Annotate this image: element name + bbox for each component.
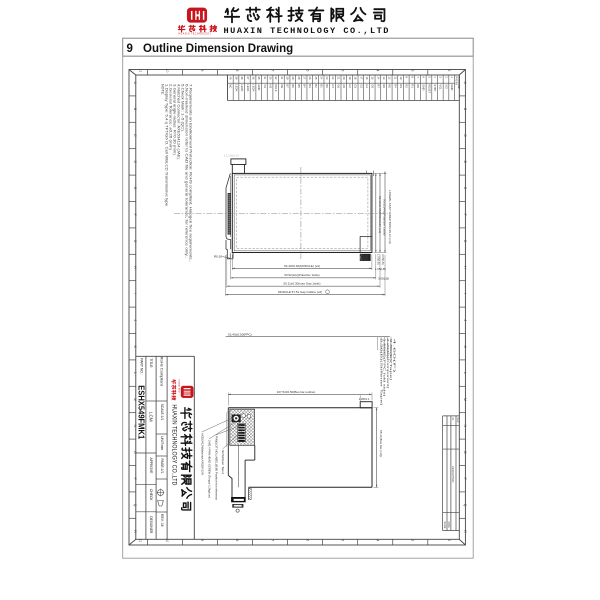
svg-text:J: J <box>463 319 467 321</box>
svg-text:VS: VS <box>263 84 267 88</box>
svg-text:2.General Tolerance: ±0.20 (mm: 2.General Tolerance: ±0.20 (mm) <box>169 84 173 151</box>
svg-text:11: 11 <box>138 539 142 543</box>
svg-text:I: I <box>133 293 137 294</box>
svg-text:4.Matched Connector: AXE534124: 4.Matched Connector: AXE534124 (JAE). <box>177 84 181 160</box>
svg-text:1.Display Type: 5.4 q TFT/G6 O: 1.Display Type: 5.4 q TFT/G6 O. Cell WBL… <box>165 84 169 206</box>
svg-text:NAME: NAME <box>443 522 446 529</box>
svg-text:12: 12 <box>388 76 392 79</box>
svg-text:37: 37 <box>246 76 250 79</box>
svg-text:B1: B1 <box>320 84 324 88</box>
svg-text:B4: B4 <box>303 84 307 88</box>
svg-text:GND: GND <box>257 84 261 90</box>
svg-text:17: 17 <box>359 76 363 79</box>
svg-text:I: I <box>463 293 467 294</box>
svg-text:G: G <box>463 240 467 243</box>
svg-text:39: 39 <box>234 76 238 79</box>
svg-text:9: 9 <box>127 43 133 55</box>
svg-text:14: 14 <box>376 76 380 79</box>
svg-text:G2: G2 <box>359 84 363 88</box>
svg-text:20: 20 <box>342 76 346 79</box>
svg-text:HUAXIN TECH: HUAXIN TECH <box>178 380 181 394</box>
svg-text:L: L <box>463 372 467 374</box>
svg-text:REV: 04: REV: 04 <box>160 514 164 527</box>
svg-text:B6: B6 <box>291 84 295 88</box>
svg-text:24: 24 <box>320 76 324 79</box>
svg-text:32: 32 <box>274 76 278 79</box>
svg-text:G0: G0 <box>371 84 375 88</box>
svg-text:NC: NC <box>229 84 233 88</box>
svg-text:55.10(Bus bar (vd)): 55.10(Bus bar (vd)) <box>379 430 383 457</box>
svg-text:7: 7 <box>270 70 274 72</box>
svg-text:23: 23 <box>325 76 329 79</box>
svg-text:4: 4 <box>375 70 379 72</box>
svg-text:HUAXIN TECHNOLOGY CO.,LTD: HUAXIN TECHNOLOGY CO.,LTD <box>224 26 390 36</box>
svg-text:PART NO.:: PART NO.: <box>139 358 143 375</box>
svg-text:6: 6 <box>305 539 309 541</box>
svg-text:RESET: RESET <box>427 84 431 93</box>
svg-text:L: L <box>133 372 137 374</box>
svg-text:18: 18 <box>354 76 358 79</box>
svg-text:22: 22 <box>331 76 335 79</box>
svg-text:R1: R1 <box>410 84 414 88</box>
svg-text:26: 26 <box>308 76 312 79</box>
svg-text:R3: R3 <box>399 84 403 88</box>
svg-text:12.20±0.30: 12.20±0.30 <box>224 154 239 158</box>
svg-text:9: 9 <box>200 539 204 541</box>
svg-text:SUS(Open Tape): SUS(Open Tape) <box>221 450 225 474</box>
svg-text:16: 16 <box>365 76 369 79</box>
svg-text:7.Requirements on Environment: 7.Requirements on Environment Protection… <box>189 84 193 262</box>
svg-text:B0: B0 <box>325 84 329 88</box>
svg-text:2-M1.4 PAN HEAD SCREW (Torque: 2-M1.4 PAN HEAD SCREW (Torque 1.2kgf.cm) <box>208 440 212 498</box>
svg-text:VGL: VGL <box>439 84 443 90</box>
svg-text:2: 2 <box>447 539 451 541</box>
svg-text:Q: Q <box>133 504 137 507</box>
svg-text:LEDA: LEDA <box>246 84 250 91</box>
svg-text:52.40±0.30(MODULE) (vd): 52.40±0.30(MODULE) (vd) <box>284 264 320 268</box>
svg-text:1.05(LB): 1.05(LB) <box>377 254 381 265</box>
svg-text:GND: GND <box>450 84 454 90</box>
svg-text:B7: B7 <box>285 84 289 88</box>
svg-text:93.52(AA)(Polarizer 1side): 93.52(AA)(Polarizer 1side) <box>383 199 387 235</box>
svg-text:9: 9 <box>200 70 204 72</box>
svg-text:R6: R6 <box>382 84 386 88</box>
svg-text:2: 2 <box>447 70 451 72</box>
svg-text:Outline Dimension Drawing: Outline Dimension Drawing <box>143 43 293 55</box>
svg-text:G: G <box>133 240 137 243</box>
svg-text:3.General angle radius: R=0.30: 3.General angle radius: R=0.30 (mm). <box>173 84 177 156</box>
svg-text:HUAXIN TECHNOLOGY CO.,LTD: HUAXIN TECHNOLOGY CO.,LTD <box>170 404 176 486</box>
svg-text:STBY: STBY <box>433 84 437 91</box>
svg-text:34: 34 <box>263 76 267 79</box>
svg-text:LEDK: LEDK <box>240 84 244 91</box>
svg-text:33: 33 <box>268 76 272 79</box>
svg-text:40: 40 <box>229 76 233 79</box>
svg-text:8: 8 <box>235 539 239 541</box>
svg-text:R2: R2 <box>405 84 409 88</box>
svg-text:R7: R7 <box>376 84 380 88</box>
svg-text:M: M <box>463 398 467 401</box>
svg-text:LEDK: LEDK <box>234 84 238 91</box>
svg-text:VCI: VCI <box>444 84 448 89</box>
svg-text:15: 15 <box>371 76 375 79</box>
svg-text:25: 25 <box>314 76 318 79</box>
svg-text:55.11±0.30(max Gap 1side): 55.11±0.30(max Gap 1side) <box>284 282 321 286</box>
svg-text:GND: GND <box>422 84 426 90</box>
svg-text:7: 7 <box>270 539 274 541</box>
svg-text:NOTE:: NOTE: <box>161 84 165 95</box>
svg-text:REV: REV <box>456 418 459 423</box>
svg-text:J: J <box>133 319 137 321</box>
svg-text:HS: HS <box>268 84 272 88</box>
svg-text:8: 8 <box>235 70 239 72</box>
svg-text:R4: R4 <box>393 84 397 88</box>
svg-text:DCLK: DCLK <box>274 84 278 91</box>
svg-text:UNIT:mm: UNIT:mm <box>160 436 164 450</box>
svg-text:G4: G4 <box>348 84 352 88</box>
svg-text:6.Non-marked dimension refer t: 6.Non-marked dimension refer to CAD file… <box>185 84 189 258</box>
svg-text:O: O <box>133 451 137 454</box>
svg-text:R5: R5 <box>388 84 392 88</box>
svg-text:5: 5 <box>340 70 344 72</box>
svg-text:13: 13 <box>382 76 386 79</box>
svg-text:DESCRIPTION: DESCRIPTION <box>451 466 454 483</box>
svg-text:G3: G3 <box>354 84 358 88</box>
svg-text:G5: G5 <box>342 84 346 88</box>
svg-text:29: 29 <box>291 76 295 79</box>
svg-text:3: 3 <box>410 70 414 72</box>
svg-text:R0.30: R0.30 <box>214 255 223 259</box>
svg-text:B3: B3 <box>308 84 312 88</box>
svg-text:AXE534124(Matched:AXE634124): AXE534124(Matched:AXE634124) <box>200 433 204 475</box>
svg-text:30: 30 <box>285 76 289 79</box>
svg-text:F: F <box>133 214 137 216</box>
svg-text:R0: R0 <box>416 84 420 88</box>
svg-text:DESIGNER: DESIGNER <box>149 516 153 534</box>
svg-text:O: O <box>463 451 467 454</box>
svg-text:3.05(LB): 3.05(LB) <box>378 277 389 281</box>
svg-text:DE: DE <box>280 84 284 88</box>
svg-text:27: 27 <box>303 76 307 79</box>
svg-text:4.60(F): 4.60(F) <box>393 339 397 373</box>
svg-text:19: 19 <box>348 76 352 79</box>
svg-text:5.Check Mark: 1~5 (QC).: 5.Check Mark: 1~5 (QC). <box>181 84 185 132</box>
svg-text:21: 21 <box>337 76 341 79</box>
svg-text:36: 36 <box>251 76 255 79</box>
svg-text:HUAXIN TECHNOLOGY: HUAXIN TECHNOLOGY <box>179 33 212 36</box>
svg-text:RoHs Compliant: RoHs Compliant <box>160 357 164 386</box>
svg-text:107.54±0.50(Bus bar outline): 107.54±0.50(Bus bar outline) <box>277 390 316 394</box>
svg-text:3: 3 <box>410 539 414 541</box>
svg-text:M: M <box>133 398 137 401</box>
svg-text:53.52(AA)(Polarizer 1side): 53.52(AA)(Polarizer 1side) <box>284 273 319 277</box>
svg-text:ESHX549FMK1: ESHX549FMK1 <box>136 385 145 440</box>
svg-text:Q: Q <box>463 504 467 507</box>
svg-text:31: 31 <box>280 76 284 79</box>
svg-text:4: 4 <box>375 539 379 541</box>
svg-text:35: 35 <box>257 76 261 79</box>
svg-text:SCALE:1/1: SCALE:1/1 <box>160 404 164 421</box>
svg-text:10: 10 <box>165 69 169 73</box>
svg-text:3.05(LB): 3.05(LB) <box>381 254 385 265</box>
svg-text:52.40±0.50(FPC): 52.40±0.50(FPC) <box>228 333 252 337</box>
svg-text:B2: B2 <box>314 84 318 88</box>
svg-text:1.05(LB): 1.05(LB) <box>375 267 386 271</box>
svg-text:DATE: DATE <box>447 522 450 529</box>
svg-text:1.05±0.1: 1.05±0.1 <box>359 397 370 401</box>
svg-text:38: 38 <box>240 76 244 79</box>
svg-text:P/N&LOT NO.LABEL(B.M) Position: P/N&LOT NO.LABEL(B.M) Position for refer… <box>214 436 218 500</box>
svg-text:G1: G1 <box>365 84 369 88</box>
svg-text:CHECK: CHECK <box>149 489 153 501</box>
svg-text:G7: G7 <box>331 84 335 88</box>
svg-text:11: 11 <box>138 69 142 73</box>
svg-text:PAGE:1/1: PAGE:1/1 <box>160 459 164 474</box>
svg-text:28: 28 <box>297 76 301 79</box>
svg-text:MODULE 57.51 Gap Outline (vd): MODULE 57.51 Gap Outline (vd) <box>278 290 322 294</box>
svg-text:B5: B5 <box>297 84 301 88</box>
svg-text:LCM: LCM <box>149 412 154 422</box>
svg-text:TITLE:: TITLE: <box>149 358 153 368</box>
svg-text:APPROVE: APPROVE <box>149 458 153 475</box>
svg-text:10: 10 <box>399 76 403 79</box>
svg-text:LEDA: LEDA <box>251 84 255 91</box>
svg-text:PIN NAME: PIN NAME <box>457 77 460 89</box>
svg-text:6: 6 <box>305 70 309 72</box>
svg-text:LCD&BL ASSY DIRECTION 95.10 (v: LCD&BL ASSY DIRECTION 95.10 (vd) <box>388 190 392 243</box>
svg-text:5: 5 <box>340 539 344 541</box>
svg-text:G6: G6 <box>337 84 341 88</box>
svg-text:F: F <box>463 214 467 216</box>
